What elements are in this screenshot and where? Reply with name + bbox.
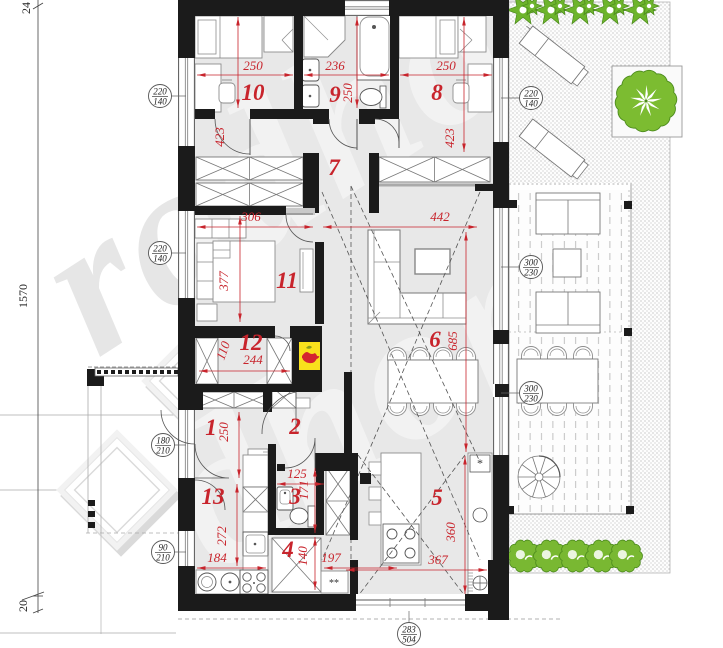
svg-text:250: 250: [340, 83, 355, 103]
svg-text:5: 5: [431, 485, 443, 510]
svg-text:10: 10: [242, 80, 266, 105]
svg-text:220: 220: [153, 244, 167, 254]
svg-text:230: 230: [524, 268, 538, 278]
svg-text:20: 20: [16, 600, 30, 612]
svg-text:**: **: [329, 578, 339, 589]
svg-text:197: 197: [321, 550, 341, 565]
svg-text:12: 12: [240, 330, 263, 355]
svg-text:220: 220: [524, 89, 538, 99]
svg-text:7: 7: [328, 155, 341, 180]
svg-text:1570: 1570: [16, 284, 30, 308]
svg-text:442: 442: [430, 209, 450, 224]
svg-text:300: 300: [523, 384, 538, 394]
svg-text:140: 140: [524, 99, 538, 109]
svg-text:1: 1: [205, 415, 217, 440]
svg-text:220: 220: [153, 87, 167, 97]
svg-text:125: 125: [287, 466, 307, 481]
svg-text:2: 2: [288, 414, 301, 439]
svg-text:8: 8: [431, 80, 443, 105]
svg-text:140: 140: [295, 546, 310, 566]
svg-text:685: 685: [445, 331, 460, 351]
svg-text:3: 3: [288, 484, 301, 509]
svg-text:230: 230: [524, 394, 538, 404]
svg-text:140: 140: [153, 254, 167, 264]
svg-text:423: 423: [212, 127, 227, 147]
svg-text:6: 6: [429, 327, 441, 352]
svg-text:367: 367: [427, 552, 448, 567]
svg-text:377: 377: [216, 271, 231, 292]
svg-text:4: 4: [281, 537, 294, 562]
svg-text:24: 24: [19, 2, 33, 14]
svg-text:140: 140: [153, 97, 167, 107]
svg-text:423: 423: [442, 128, 457, 148]
svg-text:306: 306: [240, 209, 261, 224]
svg-text:180: 180: [156, 436, 170, 446]
svg-text:504: 504: [402, 635, 416, 645]
svg-text:184: 184: [207, 550, 227, 565]
svg-text:272: 272: [214, 526, 229, 546]
svg-text:13: 13: [202, 484, 225, 509]
svg-text:236: 236: [325, 58, 345, 73]
svg-text:360: 360: [443, 522, 458, 543]
svg-text:90: 90: [159, 543, 169, 553]
svg-text:300: 300: [523, 258, 538, 268]
svg-text:11: 11: [276, 268, 298, 293]
svg-text:283: 283: [402, 625, 416, 635]
svg-text:250: 250: [243, 58, 263, 73]
svg-text:210: 210: [156, 446, 170, 456]
svg-text:250: 250: [216, 422, 231, 442]
svg-text:250: 250: [436, 58, 456, 73]
svg-text:9: 9: [329, 82, 341, 107]
svg-text:210: 210: [156, 553, 170, 563]
